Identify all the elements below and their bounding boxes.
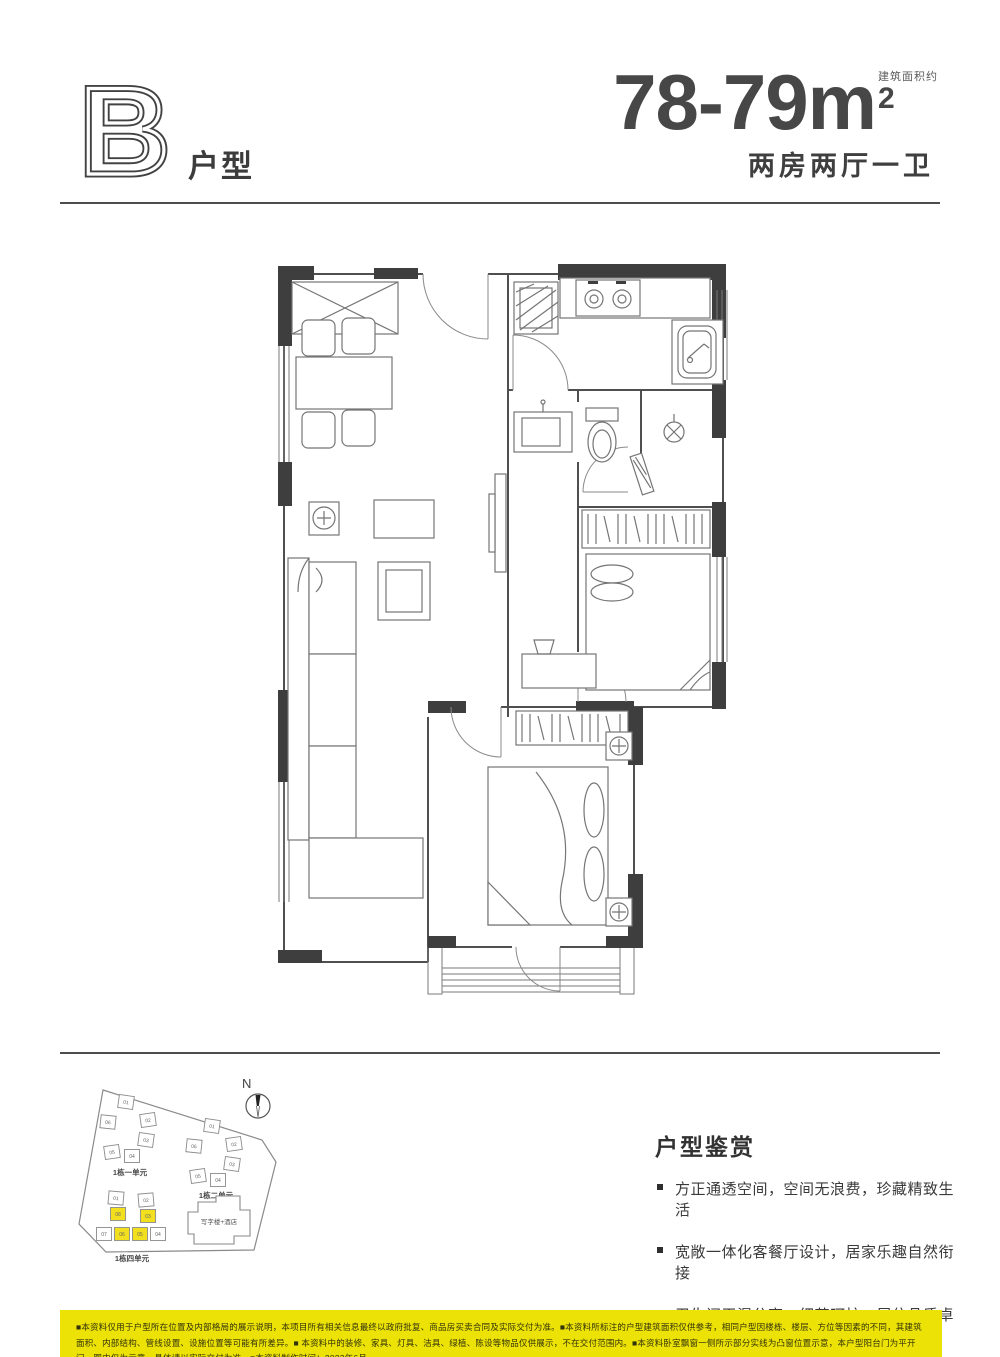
svg-text:01: 01 [123,1100,130,1107]
area-superscript: 2 [878,84,895,114]
site-unit-box: 02 [140,1113,157,1128]
svg-text:05: 05 [109,1150,116,1157]
svg-text:02: 02 [145,1118,152,1125]
svg-text:04: 04 [129,1154,135,1160]
site-unit-box: 07 [97,1228,112,1241]
site-unit-box: 06 [100,1115,116,1129]
header-left: B B 户型 [74,66,254,188]
svg-text:07: 07 [101,1232,107,1238]
office-hotel-building: 写字楼+酒店 [188,1196,250,1244]
cluster4-label: 1栋四单元 [115,1253,150,1263]
area-value: 78-79m [613,62,876,142]
svg-text:05: 05 [195,1174,202,1181]
unit-letter-logo: B B [74,66,174,188]
area-row: 78-79m 建筑面积约 2 [613,62,938,142]
floor-plan-drawing [276,262,731,998]
feature-text: 宽敞一体化客餐厅设计，居家乐趣自然衔接 [675,1241,960,1283]
site-unit-box: 01 [108,1191,124,1205]
north-label: N [242,1076,251,1091]
feature-item: 宽敞一体化客餐厅设计，居家乐趣自然衔接 [655,1241,960,1283]
site-unit-box: 05 [104,1145,121,1160]
site-unit-box: 04 [151,1228,166,1241]
bullet-square-icon [657,1247,663,1253]
divider-top [60,202,940,204]
floor-plan [276,262,731,998]
site-plan-drawing: N 01020304050601020304050601020304050607… [66,1074,388,1288]
svg-text:02: 02 [143,1198,149,1204]
svg-text:06: 06 [119,1232,125,1238]
site-unit-box: 06 [186,1139,202,1153]
svg-text:08: 08 [115,1212,121,1218]
site-unit-box: 06 [115,1228,130,1241]
site-unit-box: 01 [204,1119,221,1134]
svg-text:06: 06 [105,1120,111,1127]
unit-type-label: 户型 [188,141,254,186]
site-unit-box: 05 [190,1169,207,1184]
svg-text:01: 01 [209,1124,216,1131]
feature-item: 方正通透空间，空间无浪费，珍藏精致生活 [655,1178,960,1220]
svg-text:03: 03 [229,1162,236,1169]
site-unit-box: 02 [138,1193,154,1207]
svg-text:03: 03 [145,1214,151,1220]
site-unit-box: 03 [224,1157,241,1172]
site-unit-box: 03 [138,1133,155,1148]
site-unit-box: 05 [133,1228,148,1241]
page: B B 户型 78-79m 建筑面积约 2 两房两厅一卫 [0,0,1000,1357]
site-unit-box: 03 [141,1210,156,1223]
svg-text:02: 02 [231,1142,238,1149]
cluster1-label: 1栋一单元 [113,1167,148,1177]
disclaimer-bar: ■本资料仅用于户型所在位置及内部格局的展示说明，本项目所有相关信息最终以政府批复… [60,1310,942,1357]
bullet-square-icon [657,1184,663,1190]
layout-description: 两房两厅一卫 [613,144,938,183]
office-hotel-label: 写字楼+酒店 [201,1217,238,1226]
svg-text:04: 04 [155,1232,161,1238]
north-arrow: N [242,1076,270,1118]
svg-text:05: 05 [137,1232,143,1238]
header-right: 78-79m 建筑面积约 2 两房两厅一卫 [613,62,938,183]
feature-text: 方正通透空间，空间无浪费，珍藏精致生活 [675,1178,960,1220]
features-title: 户型鉴赏 [655,1128,960,1162]
svg-text:01: 01 [113,1196,119,1202]
svg-text:04: 04 [215,1178,221,1184]
site-unit-box: 08 [111,1208,126,1221]
site-unit-box: 04 [211,1174,226,1187]
site-unit-box: 04 [125,1150,140,1163]
unit-letter-inner: B [80,66,170,188]
site-plan: N 01020304050601020304050601020304050607… [66,1074,388,1293]
site-unit-box: 02 [226,1137,243,1152]
disclaimer-text: ■本资料仅用于户型所在位置及内部格局的展示说明，本项目所有相关信息最终以政府批复… [76,1320,928,1357]
svg-text:06: 06 [191,1144,197,1151]
svg-text:03: 03 [143,1138,150,1145]
site-unit-box: 01 [118,1095,135,1110]
divider-middle [60,1052,940,1054]
